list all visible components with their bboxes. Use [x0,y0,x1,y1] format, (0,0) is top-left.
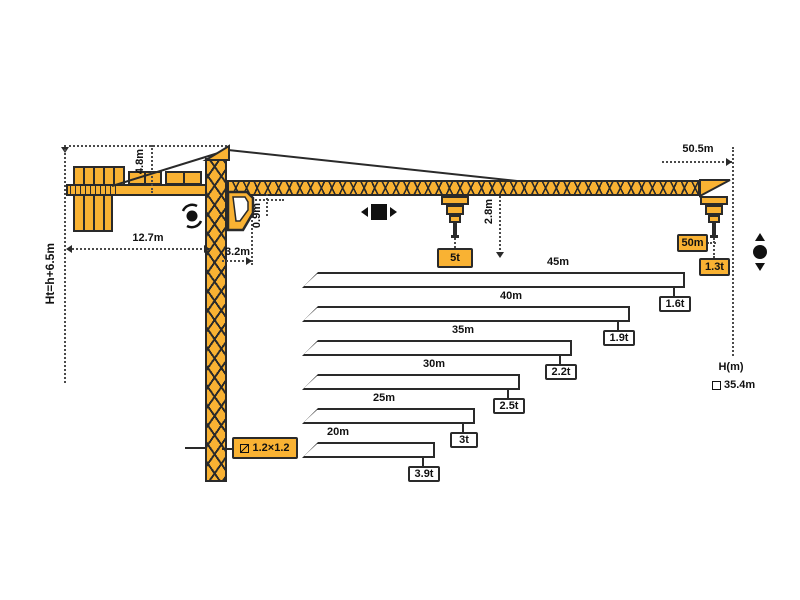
dim-jib-depth-label: 0.9m [252,203,263,228]
trolley-tip-lower [708,215,720,223]
mast-section-callout: 1.2×1.2 [232,437,298,459]
capacity-value: 2.5t [500,400,519,412]
dim-counter-jib-label: 12.7m [118,233,178,244]
max-load-callout: 5t [437,248,473,268]
capacity-value: 3t [459,434,469,446]
cab-window [233,197,248,221]
bar-length-label: 20m [327,427,349,438]
dim-line-jib-depth-short [266,194,268,216]
arrowhead [66,245,72,253]
main-jib-lattice [227,180,700,196]
bar-length-label: 25m [373,393,395,404]
dim-total-height-label: Ht=h+6.5m [44,243,56,304]
dim-line-top [64,145,227,147]
slewing-icon [183,205,201,227]
tower-mast-lattice [205,158,227,482]
trolley-tip-plate [700,196,728,205]
section-square-icon [240,444,249,453]
trolley-mid-lower [449,215,461,223]
pendant-line-jib [228,150,517,181]
capacity-value: 1.6t [666,298,685,310]
operator-cab [228,192,253,230]
arrowhead [204,245,210,253]
dim-line-hook-drop [499,196,501,254]
bar-40m [302,306,630,322]
bar-length-label: 45m [547,257,569,268]
hook-rod-mid [453,223,457,235]
height-square-icon [712,381,721,390]
capacity-value: 1.9t [610,332,629,344]
dim-max-radius-label: 50.5m [664,144,732,155]
tip-load-callout: 1.3t [699,258,730,276]
freestanding-height-row: 35.4m [712,380,755,391]
dim-line-left-height [64,145,66,383]
dim-tick-jib-depth [252,199,284,201]
dim-line-apex [151,145,153,193]
dim-line-counter-jib [68,248,210,250]
trolley-mid-plate [441,196,469,205]
right-arrow-icon [390,207,397,217]
bar-30m [302,374,520,390]
left-arrow-icon [361,207,368,217]
hoist-icon [753,233,767,271]
trolley-mid-block [446,205,464,215]
trolley-square-icon [371,204,387,220]
capacity-box-20m: 3.9t [408,466,440,482]
bar-25m [302,408,475,424]
tip-radius-value: 50m [681,237,703,249]
tip-radius-callout: 50m [677,234,708,252]
mast-section-value: 1.2×1.2 [252,442,289,454]
trolley-travel-icon [361,204,397,220]
dim-apex-height-label: 4.8m [135,149,146,174]
trolley-tip-block [705,205,723,215]
dim-line-right-margin [732,147,734,356]
bar-20m [302,442,435,458]
bar-35m [302,340,572,356]
bar-length-label: 35m [452,325,474,336]
dim-hook-drop-label: 2.8m [484,199,495,224]
counterweight-slabs-top [73,166,125,186]
bar-length-label: 40m [500,291,522,302]
connector-tip-load [713,238,715,258]
bar-length-label: 30m [423,359,445,370]
counterweight-block [73,194,113,232]
capacity-box-40m: 1.9t [603,330,635,346]
max-load-value: 5t [450,252,460,264]
capacity-box-45m: 1.6t [659,296,691,312]
arrowhead [496,252,504,258]
down-arrow-icon [755,263,765,271]
capacity-box-30m: 2.5t [493,398,525,414]
bar-45m [302,272,685,288]
mast-base-tick [185,447,205,449]
jib-tip [700,180,730,196]
tip-load-value: 1.3t [705,261,724,273]
capacity-box-25m: 3t [450,432,478,448]
height-axis-label: H(m) [700,362,762,373]
connector-5t [454,238,456,248]
counter-jib-rail-hatch [70,186,118,194]
hook-rod-tip [712,223,716,235]
machinery-box-2-divider [183,171,185,185]
dim-line-max-radius [662,161,732,163]
capacity-box-35m: 2.2t [545,364,577,380]
crane-diagram-canvas: Ht=h+6.5m 4.8m 12.7m 3.2m 0.9m 2.8m 50.5… [0,0,800,600]
capacity-value: 2.2t [552,366,571,378]
up-arrow-icon [755,233,765,241]
hoist-dot-icon [753,245,767,259]
freestanding-height-value: 35.4m [724,380,755,391]
capacity-value: 3.9t [415,468,434,480]
